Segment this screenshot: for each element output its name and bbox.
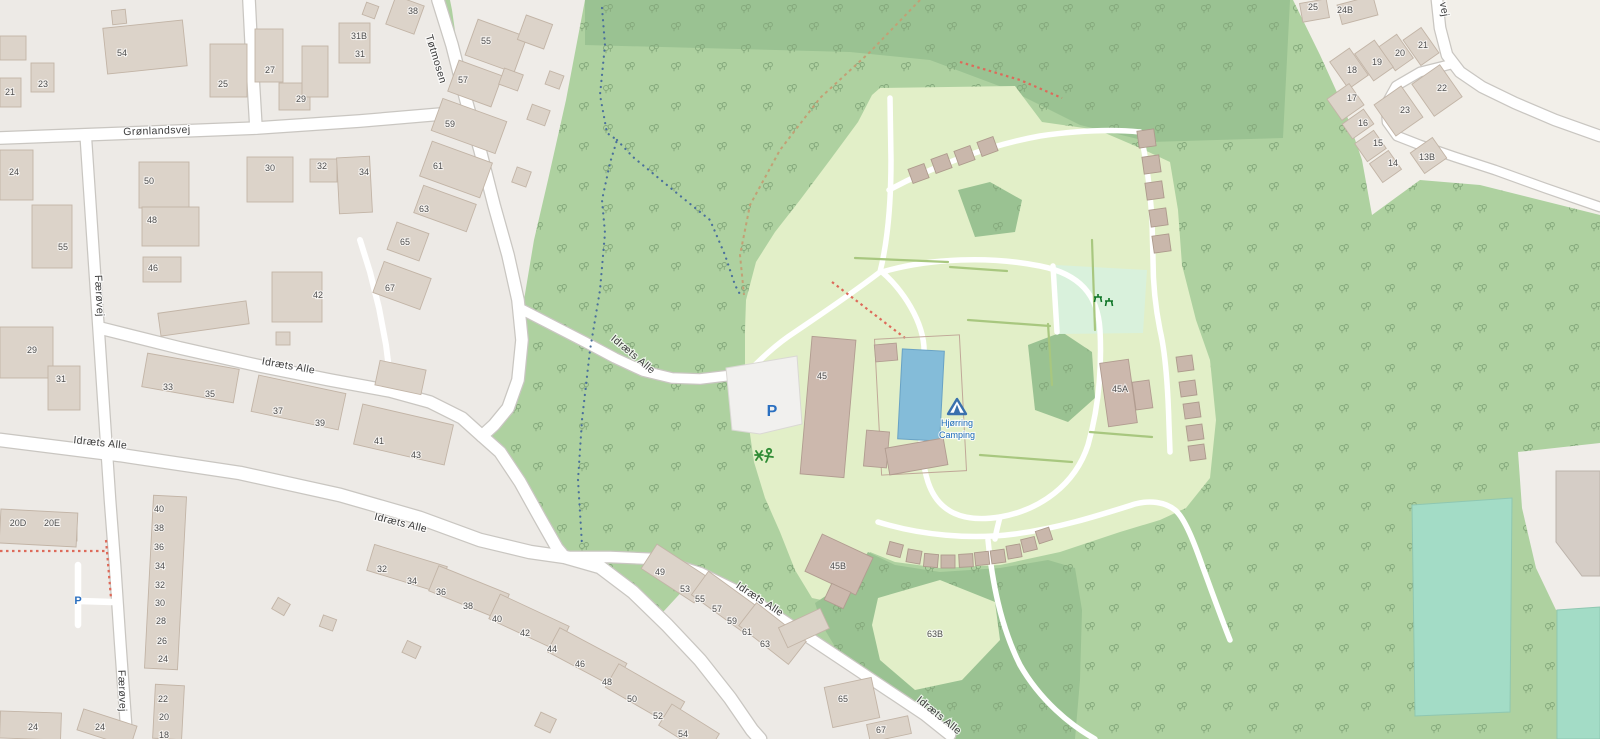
street-label-gronlandsvej: Grønlandsvej — [123, 124, 191, 138]
cabin — [1152, 234, 1171, 253]
house-number: 37 — [273, 406, 283, 416]
campsite-label: Camping — [939, 430, 975, 440]
house-number: 42 — [313, 290, 323, 300]
house-number: 48 — [147, 215, 157, 225]
house-number: 24 — [158, 654, 168, 664]
sports-pitch-2 — [1557, 607, 1600, 739]
house-number: 43 — [411, 450, 421, 460]
cabin — [1186, 424, 1204, 441]
house-number: 65 — [400, 237, 410, 247]
building — [142, 207, 199, 246]
building — [210, 44, 247, 97]
house-number: 28 — [156, 616, 166, 626]
swimming-pool — [898, 349, 945, 441]
house-number: 14 — [1388, 158, 1398, 168]
building — [0, 509, 78, 547]
house-number: 36 — [436, 587, 446, 597]
house-number: 35 — [205, 389, 215, 399]
house-number: 33 — [163, 382, 173, 392]
house-number: 25 — [218, 79, 228, 89]
house-number: 41 — [374, 436, 384, 446]
house-number: 38 — [408, 6, 418, 16]
house-number: 57 — [458, 75, 468, 85]
house-number: 46 — [575, 659, 585, 669]
house-number: 13B — [1419, 152, 1435, 162]
house-number: 24 — [95, 722, 105, 732]
house-number: 23 — [38, 79, 48, 89]
house-number: 52 — [653, 711, 663, 721]
house-number: 46 — [148, 263, 158, 273]
cabin — [990, 549, 1006, 564]
house-number: 63 — [760, 639, 770, 649]
house-number: 55 — [481, 36, 491, 46]
sports-pitch — [1412, 498, 1512, 716]
building — [302, 46, 328, 97]
parking-icon: P — [74, 595, 81, 607]
house-number: 54 — [117, 48, 127, 58]
house-number: 22 — [1437, 83, 1447, 93]
house-number: 16 — [1358, 118, 1368, 128]
house-number: 39 — [315, 418, 325, 428]
cabin — [974, 551, 989, 565]
cabin — [906, 549, 922, 564]
cabin — [1021, 536, 1038, 552]
cabin — [1137, 129, 1156, 148]
house-number: 45A — [1112, 384, 1128, 394]
house-number: 21 — [5, 87, 15, 97]
house-number: 24 — [9, 167, 19, 177]
house-number: 45 — [817, 371, 827, 381]
building — [0, 36, 26, 60]
house-number: 50 — [627, 694, 637, 704]
house-number: 67 — [876, 725, 886, 735]
house-number: 32 — [155, 580, 165, 590]
house-number: 20D — [10, 518, 27, 528]
house-number: 44 — [547, 644, 557, 654]
house-number: 54 — [678, 729, 688, 739]
street-label-partial: vej — [1437, 1, 1451, 17]
house-number: 17 — [1347, 93, 1357, 103]
house-number: 38 — [154, 523, 164, 533]
house-number: 40 — [492, 614, 502, 624]
house-number: 34 — [407, 576, 417, 586]
campsite-label: Hjørring — [941, 418, 973, 428]
house-number: 24 — [28, 722, 38, 732]
house-number: 25 — [1308, 2, 1318, 12]
house-number: 34 — [155, 561, 165, 571]
house-number: 18 — [159, 730, 169, 739]
cabin — [941, 555, 955, 568]
house-number: 67 — [385, 283, 395, 293]
cabin — [1183, 402, 1201, 419]
house-number: 40 — [154, 504, 164, 514]
house-number: 22 — [158, 694, 168, 704]
house-number: 38 — [463, 601, 473, 611]
cabin — [959, 554, 974, 568]
map-canvas[interactable]: GrønlandsvejTøtmosenFærøvejFærøvejIdræts… — [0, 0, 1600, 739]
house-number: 31 — [56, 374, 66, 384]
house-number: 53 — [680, 584, 690, 594]
house-number: 31B — [351, 31, 367, 41]
house-number: 20E — [44, 518, 60, 528]
street-label-faerovej: Færøvej — [92, 275, 106, 317]
house-number: 30 — [155, 598, 165, 608]
building — [337, 156, 373, 214]
house-number: 26 — [157, 636, 167, 646]
building — [111, 9, 126, 24]
house-number: 32 — [377, 564, 387, 574]
building — [48, 366, 80, 410]
building — [32, 205, 72, 268]
house-number: 29 — [27, 345, 37, 355]
house-number: 30 — [265, 163, 275, 173]
house-number: 15 — [1373, 138, 1383, 148]
house-number: 48 — [602, 677, 612, 687]
house-number: 29 — [296, 94, 306, 104]
house-number: 59 — [445, 119, 455, 129]
house-number: 63B — [927, 629, 943, 639]
cabin — [923, 553, 938, 567]
house-number: 55 — [58, 242, 68, 252]
house-number: 36 — [154, 542, 164, 552]
building — [276, 332, 290, 345]
house-number: 61 — [433, 161, 443, 171]
house-number: 23 — [1400, 105, 1410, 115]
house-number: 49 — [655, 567, 665, 577]
building-camp — [874, 343, 897, 362]
house-number: 20 — [1395, 48, 1405, 58]
house-number: 59 — [727, 616, 737, 626]
house-number: 27 — [265, 65, 275, 75]
cabin — [1179, 380, 1197, 397]
cabin — [1145, 181, 1164, 200]
cabin — [1142, 155, 1161, 174]
house-number: 24B — [1337, 5, 1353, 15]
house-number: 57 — [712, 604, 722, 614]
cabin — [1149, 208, 1168, 227]
house-number: 45B — [830, 561, 846, 571]
house-number: 50 — [144, 176, 154, 186]
house-number: 61 — [742, 627, 752, 637]
house-number: 18 — [1347, 65, 1357, 75]
cabin — [1188, 444, 1206, 461]
parking-lot — [726, 356, 802, 434]
cabin — [1176, 355, 1194, 372]
house-number: 42 — [520, 628, 530, 638]
building — [103, 20, 187, 74]
house-number: 31 — [355, 49, 365, 59]
house-number: 32 — [317, 161, 327, 171]
building-camp — [1132, 380, 1153, 410]
house-number: 63 — [419, 204, 429, 214]
house-number: 19 — [1372, 57, 1382, 67]
cabin — [1006, 544, 1022, 559]
house-number: 21 — [1418, 40, 1428, 50]
house-number: 55 — [695, 594, 705, 604]
house-number: 20 — [159, 712, 169, 722]
parking-icon: P — [767, 403, 778, 420]
house-number: 65 — [838, 694, 848, 704]
street-label-faerovej: Færøvej — [115, 670, 128, 712]
house-number: 34 — [359, 167, 369, 177]
